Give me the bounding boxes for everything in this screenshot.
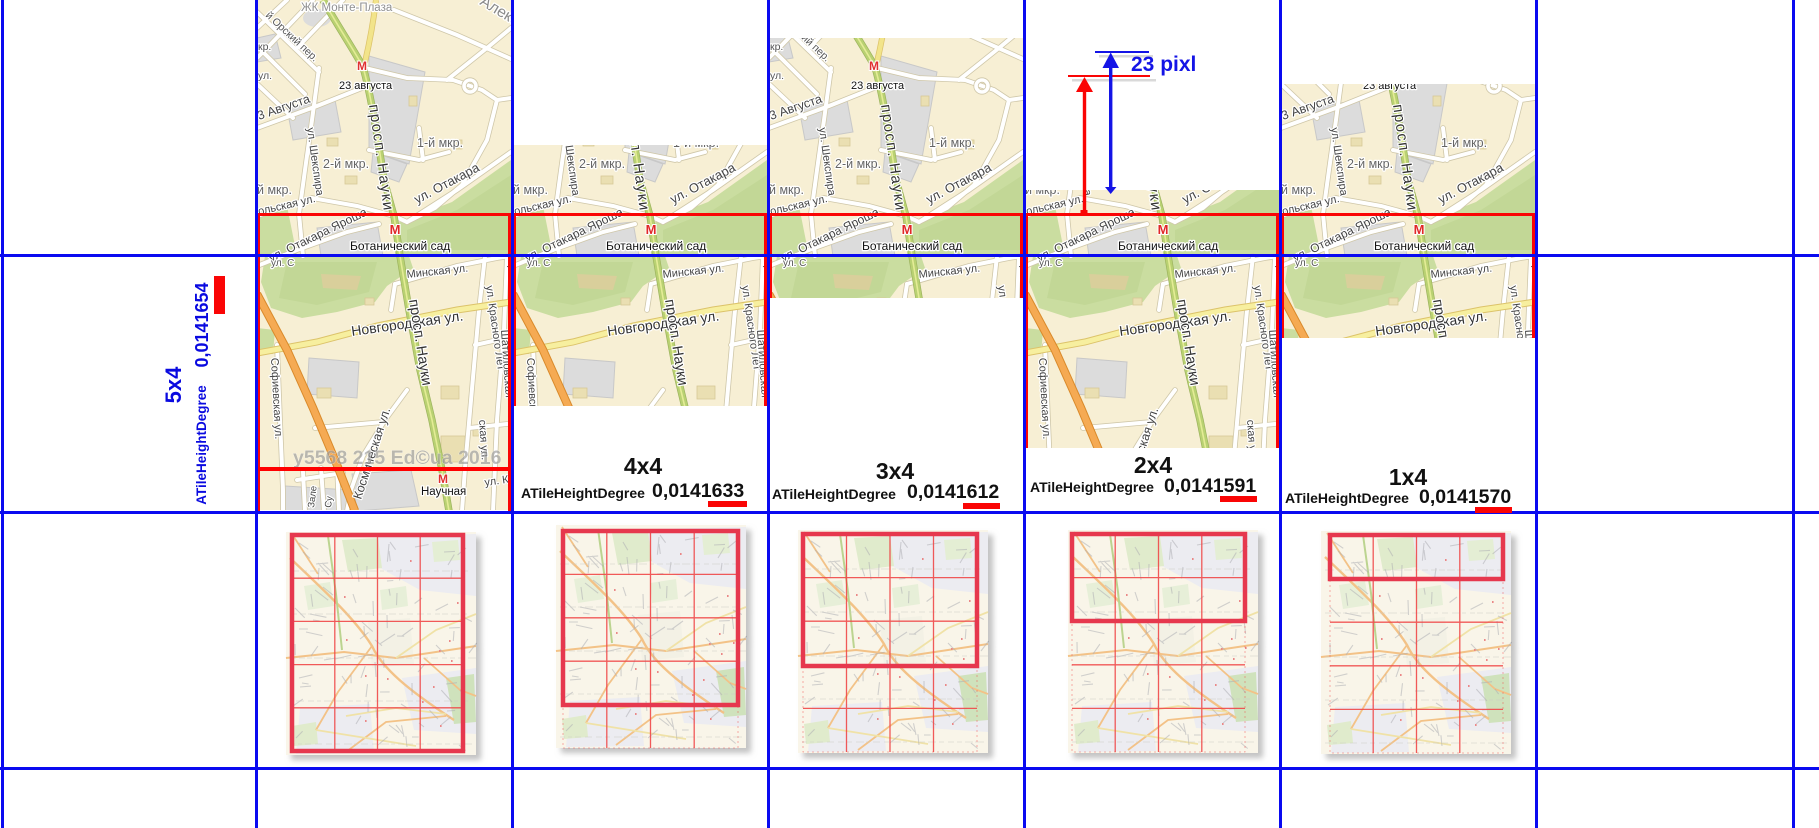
svg-text:0,0141654: 0,0141654 [192,282,212,367]
svg-text:ATileHeightDegree: ATileHeightDegree [772,486,896,502]
svg-text:0,0141591: 0,0141591 [1164,475,1256,497]
svg-text:y5568 215 Ed©ua 2016: y5568 215 Ed©ua 2016 [293,447,502,469]
svg-text:5x4: 5x4 [161,366,186,403]
svg-text:ATileHeightDegree: ATileHeightDegree [194,385,209,505]
svg-text:4x4: 4x4 [624,453,663,479]
svg-text:ATileHeightDegree: ATileHeightDegree [1030,479,1154,495]
svg-text:ATileHeightDegree: ATileHeightDegree [521,485,645,501]
svg-text:0,0141612: 0,0141612 [907,481,999,503]
svg-text:23 pixl: 23 pixl [1131,53,1196,76]
svg-text:0,0141633: 0,0141633 [652,480,744,502]
svg-text:0,0141570: 0,0141570 [1419,486,1511,508]
svg-text:ATileHeightDegree: ATileHeightDegree [1285,490,1409,506]
